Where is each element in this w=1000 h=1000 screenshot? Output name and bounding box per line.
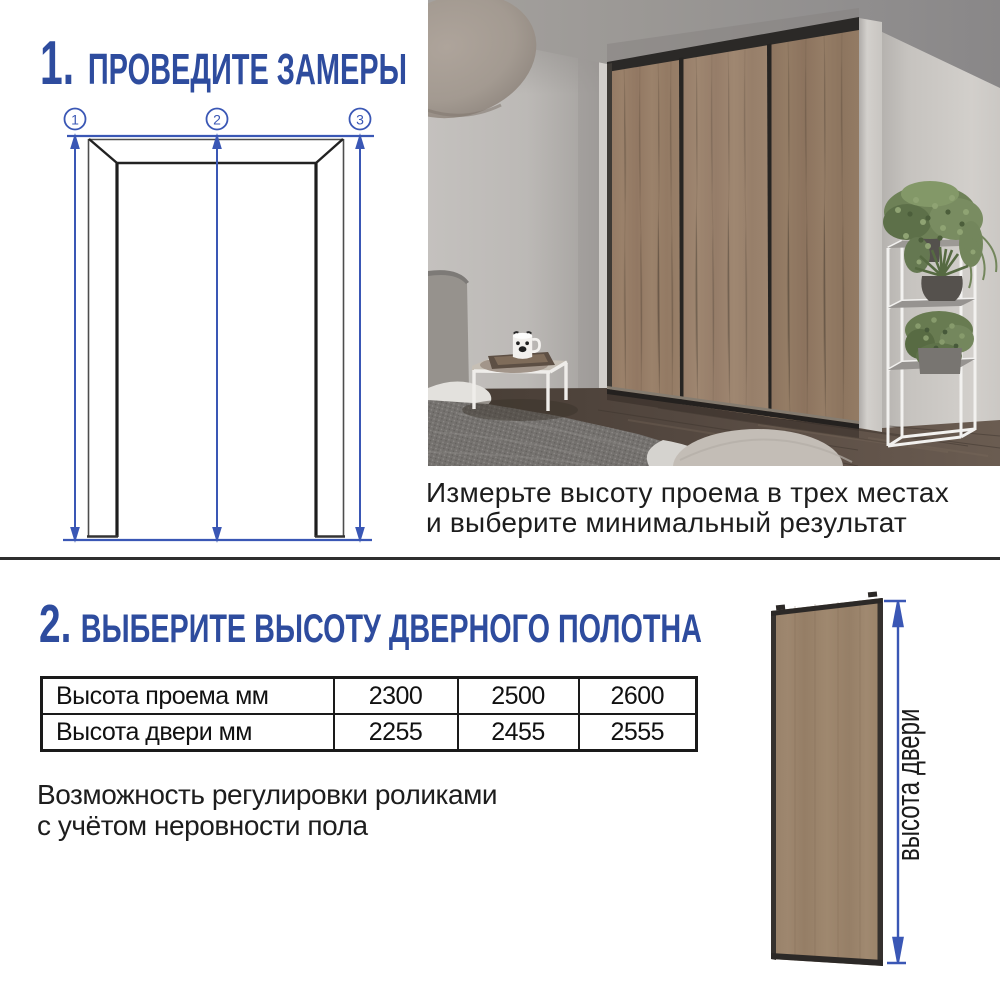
svg-text:2: 2 bbox=[213, 112, 221, 128]
svg-text:1: 1 bbox=[71, 112, 79, 128]
svg-text:3: 3 bbox=[356, 112, 364, 128]
